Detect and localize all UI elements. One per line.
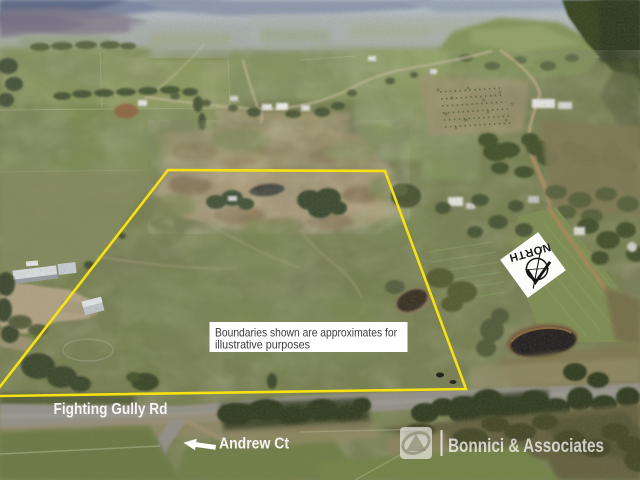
svg-text:Andrew Ct: Andrew Ct (219, 436, 289, 453)
svg-text:illustrative purposes: illustrative purposes (215, 338, 310, 352)
svg-text:Fighting Gully Rd: Fighting Gully Rd (54, 401, 168, 418)
svg-text:Bonnici & Associates: Bonnici & Associates (448, 435, 604, 457)
